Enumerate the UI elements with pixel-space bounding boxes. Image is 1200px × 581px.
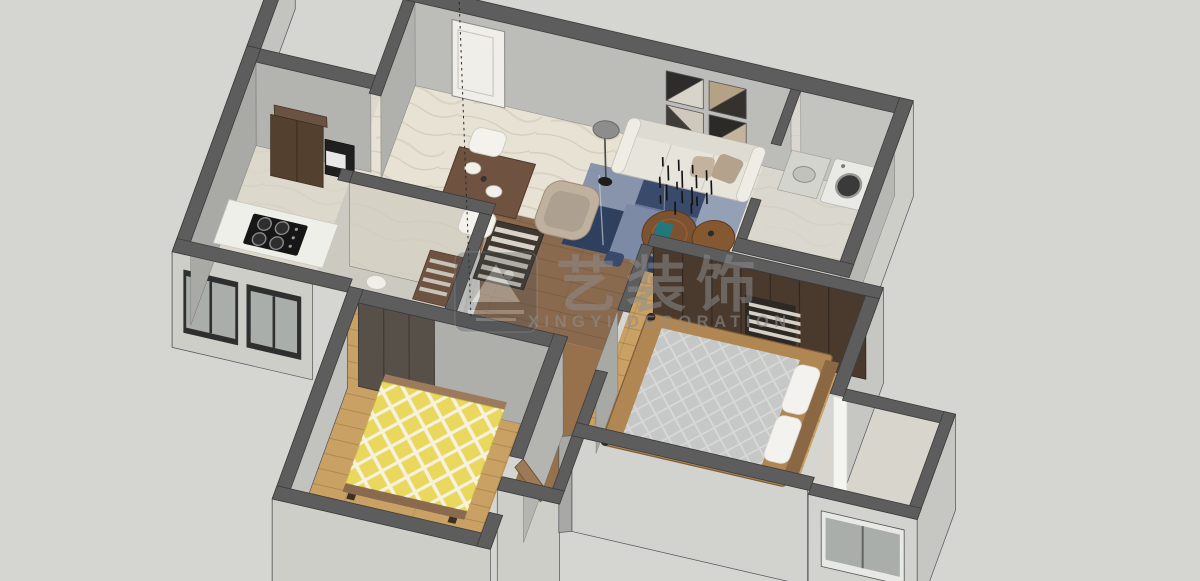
floorplan-render: 艺装饰 XINGYI DECORATION [0, 0, 1200, 581]
floorplan-svg: 艺装饰 XINGYI DECORATION [0, 0, 1200, 581]
watermark-title-cn: 艺装饰 [556, 251, 766, 321]
xingyi-logo-mark [455, 252, 537, 332]
watermark-subtitle-en: XINGYI DECORATION [528, 313, 792, 331]
watermark: 艺装饰 XINGYI DECORATION [455, 251, 792, 332]
